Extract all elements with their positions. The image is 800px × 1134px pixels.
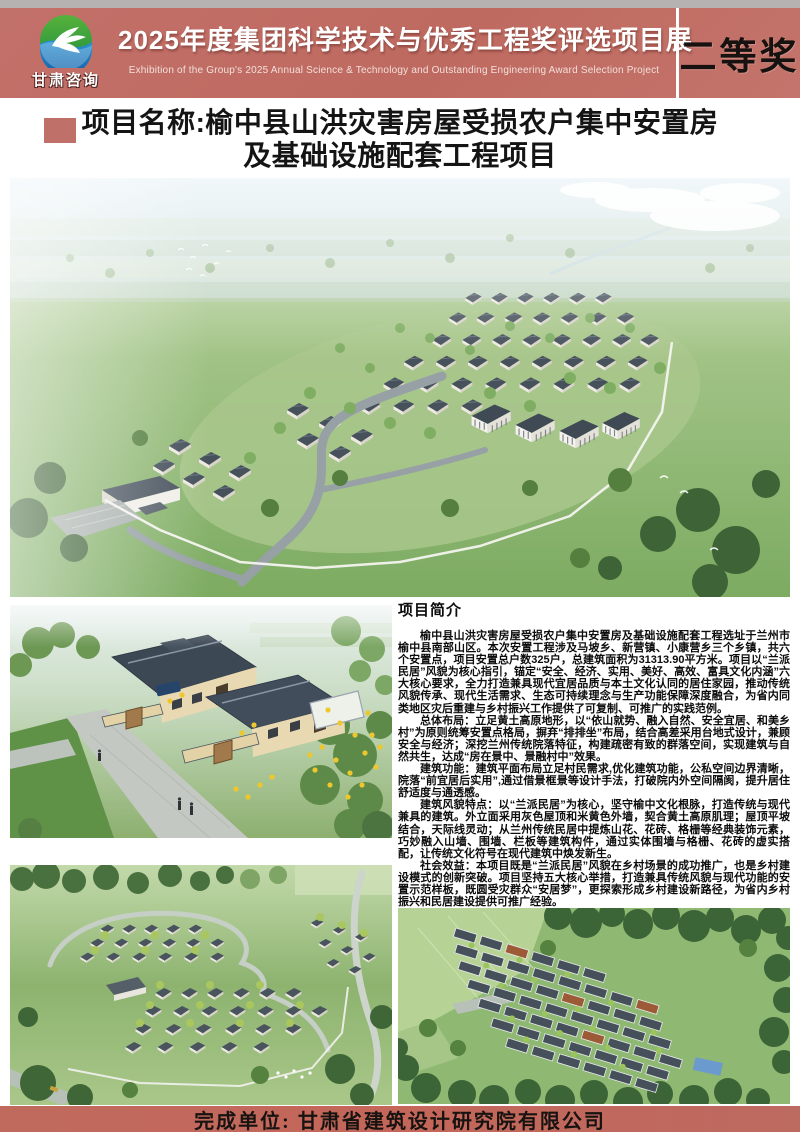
logo: 甘肃咨询 xyxy=(20,14,112,90)
project-title-block: 项目名称:榆中县山洪灾害房屋受损农户集中安置房 及基础设施配套工程项目 xyxy=(0,106,800,172)
intro-heading: 项目简介 xyxy=(398,599,790,620)
header-banner: 甘肃咨询 2025年度集团科学技术与优秀工程奖评选项目展 Exhibition … xyxy=(0,8,800,98)
logo-label: 甘肃咨询 xyxy=(20,69,112,90)
footer-completed-by: 完成单位: 甘肃省建筑设计研究院有限公司 xyxy=(194,1105,606,1134)
intro-paragraph-function: 建筑功能：建筑平面布局立足村民需求,优化建筑功能，公私空间边界清晰，院落“前宜居… xyxy=(398,763,790,799)
project-intro-section: 项目简介 榆中县山洪灾害房屋受损农户集中安置房及基础设施配套工程选址于兰州市榆中… xyxy=(398,599,790,908)
settlement-aerial-right-image xyxy=(398,908,790,1104)
main-aerial-render xyxy=(10,178,790,597)
project-title-line2: 及基础设施配套工程项目 xyxy=(0,139,800,172)
title-accent-square xyxy=(44,118,76,143)
settlement-aerial-right xyxy=(398,908,790,1104)
intro-paragraph-overview: 榆中县山洪灾害房屋受损农户集中安置房及基础设施配套工程选址于兰州市榆中县南部山区… xyxy=(398,630,790,715)
project-title-line1: 项目名称:榆中县山洪灾害房屋受损农户集中安置房 xyxy=(0,106,800,139)
intro-paragraph-style: 建筑风貌特点：以“兰派民居”为核心，坚守榆中文化根脉，打造传统与现代兼具的建筑。… xyxy=(398,799,790,859)
award-badge: 二等奖 xyxy=(679,8,800,98)
courtyard-house-render-image xyxy=(10,605,392,838)
settlement-aerial-left xyxy=(10,865,392,1105)
intro-paragraph-social: 社会效益：本项目既是“兰派民居”风貌在乡村场景的成功推广，也是乡村建设模式的创新… xyxy=(398,860,790,908)
logo-swan-icon xyxy=(39,14,93,68)
courtyard-house-render xyxy=(10,605,392,838)
header-title-en: Exhibition of the Group's 2025 Annual Sc… xyxy=(118,65,670,76)
settlement-aerial-left-image xyxy=(10,865,392,1105)
header-title-cn: 2025年度集团科学技术与优秀工程奖评选项目展 xyxy=(118,20,670,57)
main-aerial-render-image xyxy=(10,178,790,597)
poster-page: 甘肃咨询 2025年度集团科学技术与优秀工程奖评选项目展 Exhibition … xyxy=(0,0,800,1132)
intro-paragraph-layout: 总体布局：立足黄土高原地形，以“依山就势、融入自然、安全宜居、和美乡村”为原则统… xyxy=(398,715,790,763)
footer-bar: 完成单位: 甘肃省建筑设计研究院有限公司 xyxy=(0,1106,800,1132)
header-titles: 2025年度集团科学技术与优秀工程奖评选项目展 Exhibition of th… xyxy=(118,20,670,76)
